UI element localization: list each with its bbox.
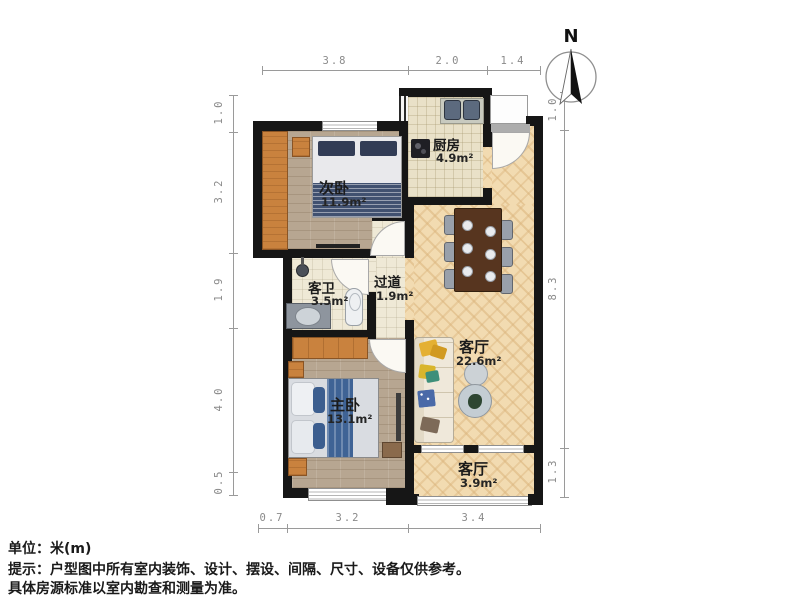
dimension-tick xyxy=(408,524,409,533)
wall xyxy=(253,121,323,131)
room-area-hallway: 1.9m² xyxy=(376,289,413,303)
balcony-window xyxy=(417,496,532,506)
room-area-secondary-bedroom: 11.9m² xyxy=(321,195,366,209)
wall xyxy=(405,320,414,505)
wall xyxy=(524,445,536,453)
north-compass: N xyxy=(540,24,602,114)
burner xyxy=(421,149,426,154)
burner xyxy=(415,143,421,149)
kitchen-left-window xyxy=(399,96,408,124)
coffee-table xyxy=(458,384,492,418)
dimension-label: 1.3 xyxy=(547,456,559,486)
plant xyxy=(468,394,482,409)
pillow xyxy=(313,423,325,449)
room-area-balcony: 3.9m² xyxy=(460,476,497,490)
compass-needle-west xyxy=(560,49,571,104)
plate xyxy=(462,266,473,277)
pillow xyxy=(417,389,436,408)
footer-tip2: 具体房源标准以室内勘查和测量为准。 xyxy=(8,578,246,598)
footer-tip: 提示：户型图中所有室内装饰、设计、摆设、间隔、尺寸、设备仅供参考。 xyxy=(8,559,470,579)
wall xyxy=(253,249,376,258)
room-area-guest-bathroom: 3.5m² xyxy=(311,294,348,308)
dimension-label: 2.0 xyxy=(428,55,468,67)
stove xyxy=(411,139,430,158)
dresser xyxy=(382,442,402,458)
balcony-divider-window xyxy=(421,445,464,453)
nightstand xyxy=(288,361,304,378)
dimension-label: 3.2 xyxy=(328,512,368,524)
nightstand xyxy=(292,137,310,157)
dimension-tick xyxy=(287,524,288,533)
pillow xyxy=(425,370,440,383)
room-area-kitchen: 4.9m² xyxy=(436,151,473,165)
dimension-label: 1.9 xyxy=(213,274,225,304)
dimension-label: 3.4 xyxy=(454,512,494,524)
wardrobe xyxy=(262,131,288,250)
plate xyxy=(462,243,473,254)
floor-kitchen-doorway xyxy=(483,147,492,188)
dimension-tick xyxy=(560,497,569,498)
dimension-line-top xyxy=(262,70,540,71)
wall xyxy=(483,188,492,205)
dimension-label: 0.7 xyxy=(252,512,292,524)
dimension-tick xyxy=(408,66,409,75)
dimension-label: 1.4 xyxy=(493,55,533,67)
master-bedroom-window xyxy=(308,488,388,501)
pillow xyxy=(360,141,397,156)
plate xyxy=(485,271,496,282)
dimension-label: 3.8 xyxy=(315,55,355,67)
wall xyxy=(405,197,414,258)
sink xyxy=(463,100,480,120)
wall xyxy=(399,88,492,97)
dimension-label: 3.2 xyxy=(213,176,225,206)
room-area-master-bedroom: 13.1m² xyxy=(327,412,372,426)
dimension-tick xyxy=(229,472,238,473)
dimension-label: 4.0 xyxy=(213,384,225,414)
dimension-label: 0.5 xyxy=(213,467,225,497)
dimension-tick xyxy=(229,328,238,329)
bench xyxy=(316,244,360,248)
nightstand xyxy=(288,458,307,476)
pillow xyxy=(318,141,355,156)
shower xyxy=(296,264,309,277)
plate xyxy=(462,220,473,231)
shower-pipe xyxy=(301,257,304,265)
plate xyxy=(485,249,496,260)
wall xyxy=(464,445,478,453)
dimension-tick xyxy=(229,253,238,254)
footer-unit: 单位：米(m) xyxy=(8,538,91,558)
dimension-line-bottom xyxy=(258,528,540,529)
sink xyxy=(444,100,461,120)
dimension-tick xyxy=(262,66,263,75)
balcony-divider-window xyxy=(478,445,524,453)
wall xyxy=(253,121,262,258)
wall xyxy=(283,488,310,498)
compass-needle-east xyxy=(571,49,582,104)
toilet-seat xyxy=(349,293,361,311)
floorplan-canvas: 厨房 4.9m² 次卧 11.9m² 客卫 3.5m² 过道 1.9m² 客厅 … xyxy=(0,0,800,600)
dimension-tick xyxy=(487,66,488,75)
secondary-bedroom-window xyxy=(322,121,378,131)
dimension-label: 1.0 xyxy=(213,97,225,127)
pillow xyxy=(291,382,315,416)
dimension-tick xyxy=(540,524,541,533)
pillow xyxy=(291,420,315,454)
room-label-hallway: 过道 xyxy=(374,271,401,291)
dimension-tick xyxy=(229,495,238,496)
wall xyxy=(528,494,543,505)
wardrobe xyxy=(292,337,368,359)
dimension-label: 8.3 xyxy=(547,273,559,303)
dimension-tick xyxy=(229,132,238,133)
wall xyxy=(399,197,492,205)
vanity-sink xyxy=(295,307,321,326)
dimension-tick xyxy=(229,95,238,96)
dimension-tick xyxy=(560,448,569,449)
dimension-tick xyxy=(258,524,259,533)
dimension-line-right xyxy=(564,92,565,497)
entry-top-window xyxy=(490,95,528,124)
plate xyxy=(485,226,496,237)
tv-console xyxy=(396,393,401,441)
north-label: N xyxy=(563,26,578,47)
dimension-line-left xyxy=(233,95,234,495)
room-area-living-room: 22.6m² xyxy=(456,354,501,368)
entry-door-leaf xyxy=(491,124,530,132)
pillow xyxy=(313,387,325,413)
dimension-tick xyxy=(560,130,569,131)
